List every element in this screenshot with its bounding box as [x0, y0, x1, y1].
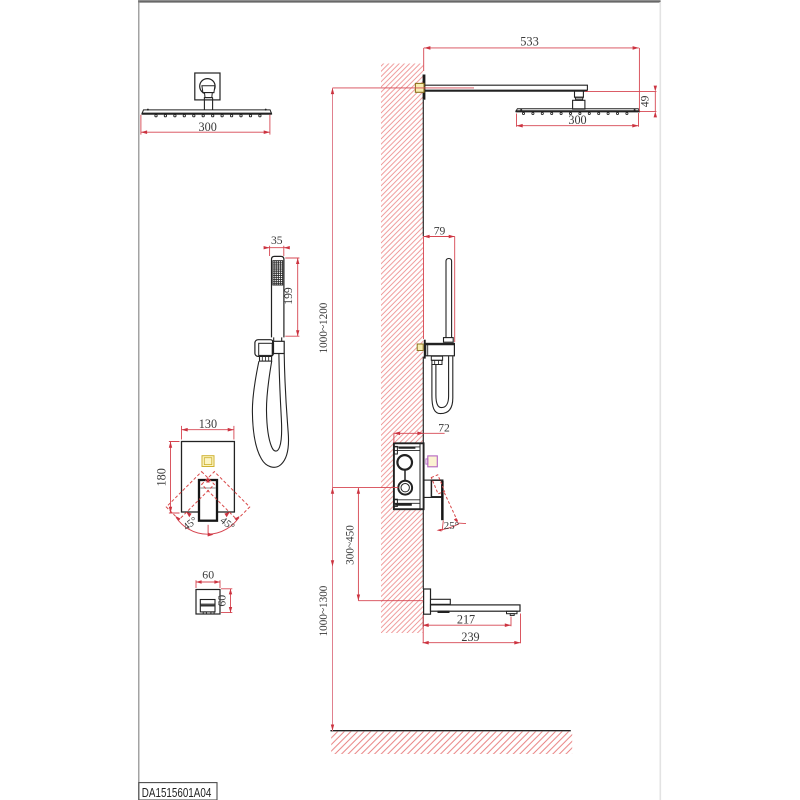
- svg-text:25°: 25°: [444, 520, 459, 532]
- svg-text:1000~1200: 1000~1200: [318, 302, 330, 353]
- svg-text:45°: 45°: [218, 515, 236, 533]
- svg-text:60: 60: [202, 568, 214, 582]
- svg-text:49: 49: [638, 95, 651, 107]
- svg-text:130: 130: [199, 417, 217, 431]
- svg-text:60: 60: [214, 595, 228, 607]
- svg-text:1000~1300: 1000~1300: [318, 585, 330, 636]
- svg-text:533: 533: [520, 34, 539, 48]
- svg-text:79: 79: [434, 225, 446, 238]
- svg-text:300~450: 300~450: [344, 525, 356, 565]
- svg-text:180: 180: [154, 468, 168, 486]
- svg-text:300: 300: [199, 120, 217, 134]
- svg-text:300: 300: [568, 113, 586, 127]
- svg-text:217: 217: [457, 612, 475, 626]
- svg-text:199: 199: [282, 287, 295, 305]
- svg-text:45°: 45°: [181, 515, 199, 533]
- svg-text:239: 239: [461, 630, 479, 644]
- svg-text:35: 35: [271, 234, 283, 247]
- svg-text:72: 72: [438, 421, 450, 434]
- svg-text:DA1515601A04: DA1515601A04: [142, 785, 212, 800]
